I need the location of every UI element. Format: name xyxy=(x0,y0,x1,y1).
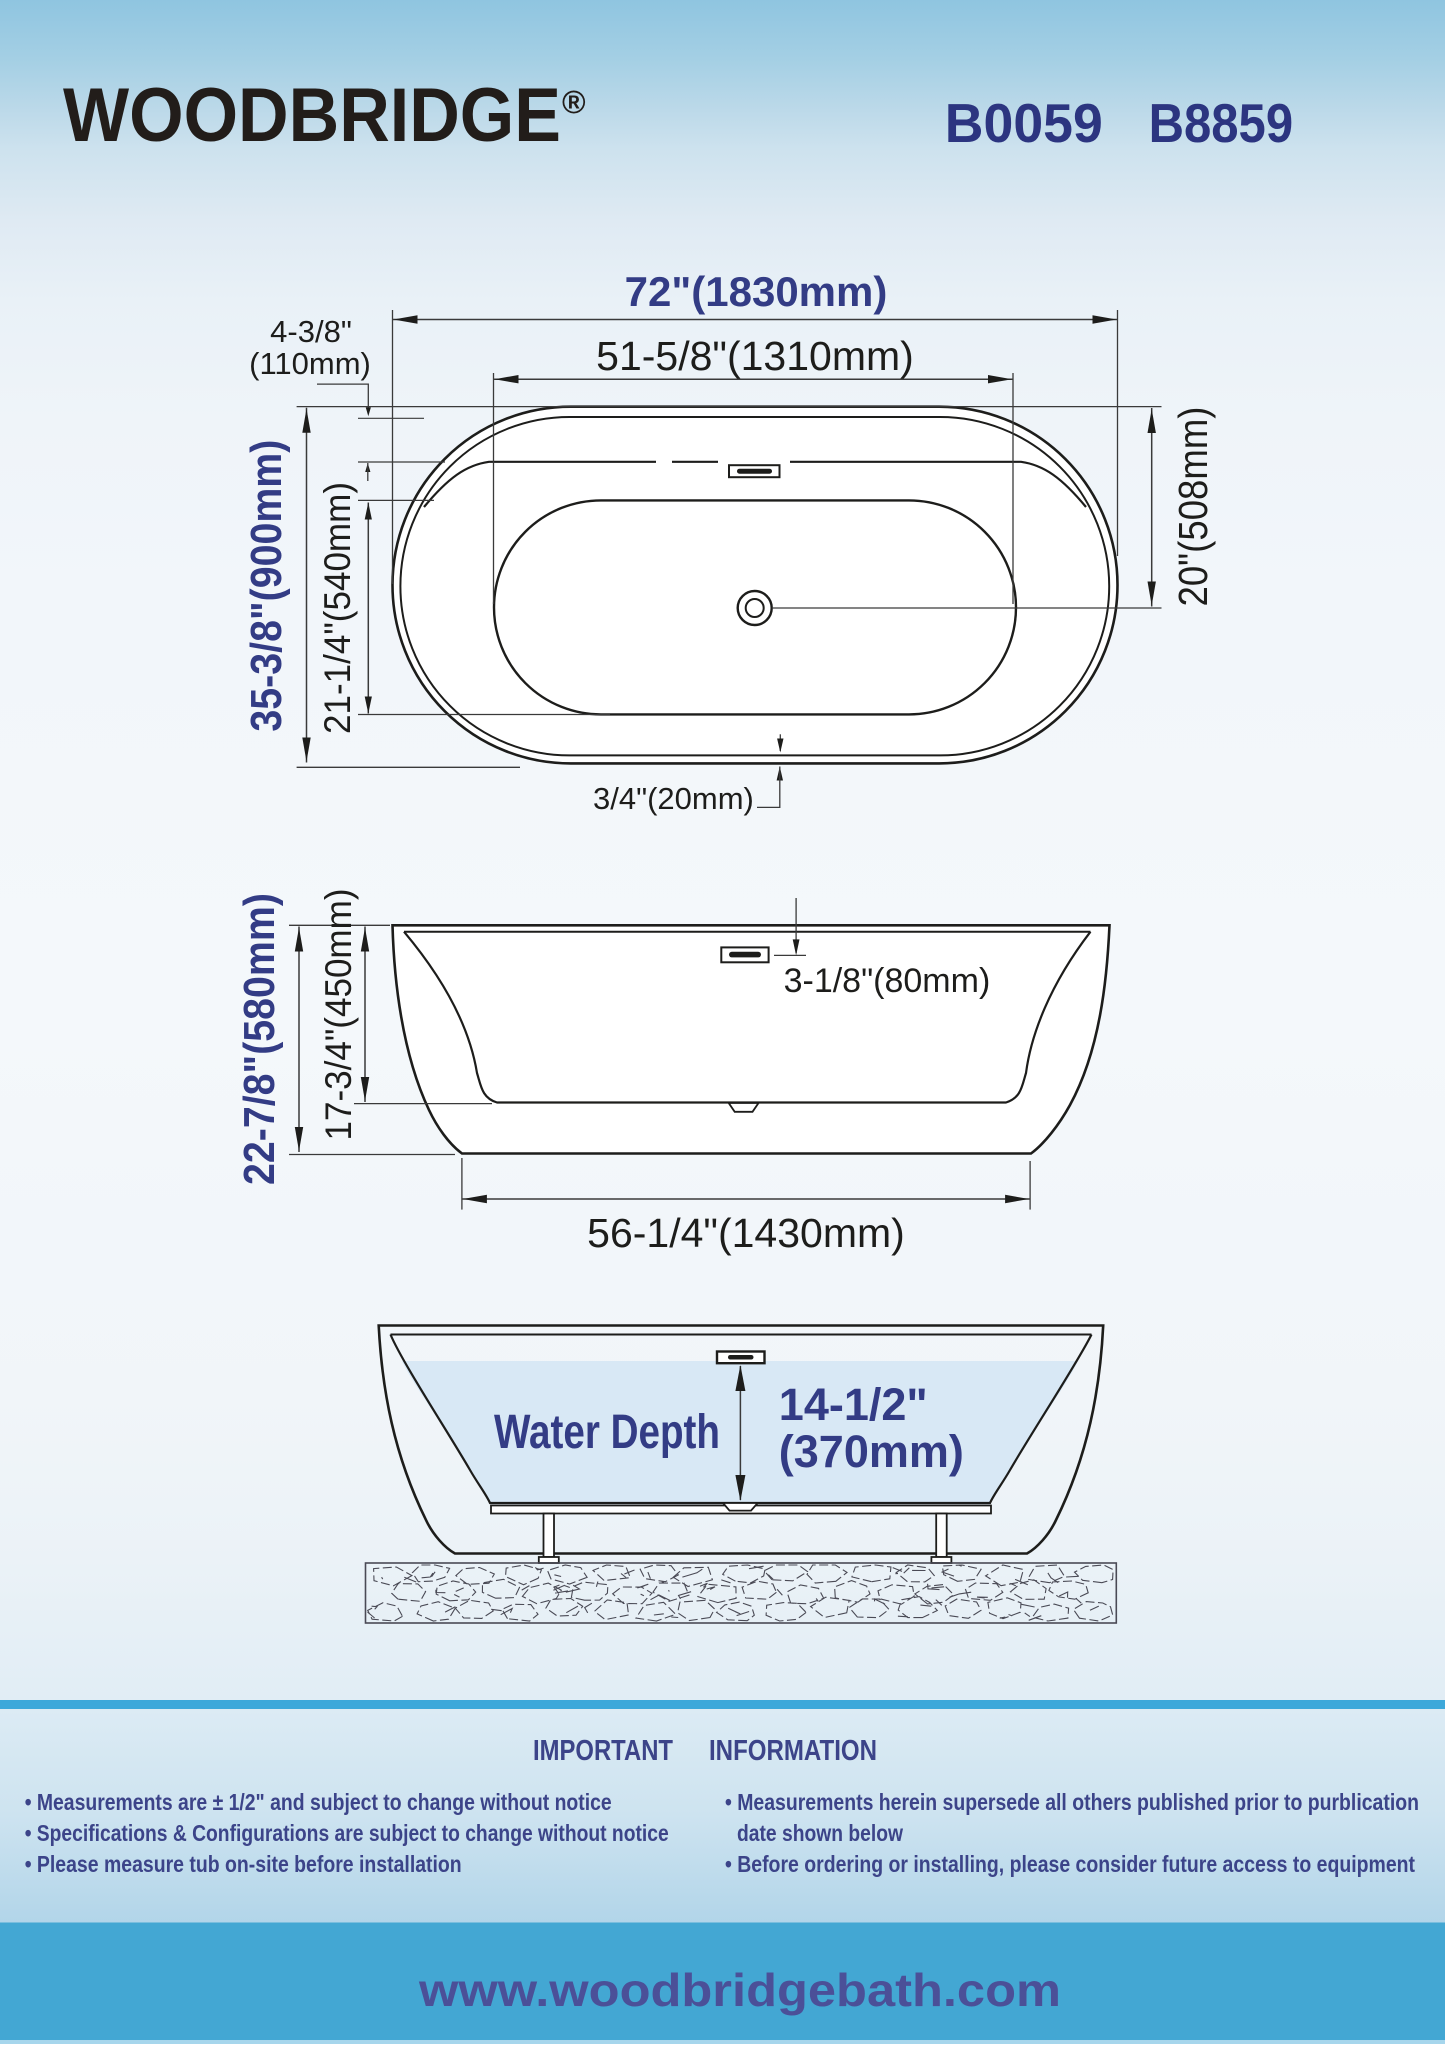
svg-text:B8859: B8859 xyxy=(1149,92,1294,154)
svg-text:®: ® xyxy=(562,84,586,120)
svg-text:• Before ordering or installin: • Before ordering or installing, please … xyxy=(725,1851,1415,1877)
svg-text:WOODBRIDGE: WOODBRIDGE xyxy=(63,73,561,158)
svg-text:35-3/8"(900mm): 35-3/8"(900mm) xyxy=(242,440,291,732)
svg-text:72"(1830mm): 72"(1830mm) xyxy=(625,268,888,315)
svg-text:www.woodbridgebath.com: www.woodbridgebath.com xyxy=(418,1964,1061,2016)
svg-text:17-3/4"(450mm): 17-3/4"(450mm) xyxy=(318,889,359,1141)
svg-text:• Measurements are ± 1/2" and: • Measurements are ± 1/2" and subject to… xyxy=(25,1789,612,1815)
svg-text:B0059: B0059 xyxy=(945,92,1103,154)
svg-text:• Specifications & Configurati: • Specifications & Configurations are su… xyxy=(25,1820,669,1846)
svg-text:4-3/8": 4-3/8" xyxy=(270,314,352,349)
svg-text:3/4"(20mm): 3/4"(20mm) xyxy=(593,781,754,816)
svg-text:INFORMATION: INFORMATION xyxy=(709,1735,877,1767)
svg-text:3-1/8"(80mm): 3-1/8"(80mm) xyxy=(784,962,991,1000)
svg-text:(370mm): (370mm) xyxy=(779,1426,964,1477)
svg-text:IMPORTANT: IMPORTANT xyxy=(533,1735,673,1767)
svg-text:56-1/4"(1430mm): 56-1/4"(1430mm) xyxy=(587,1210,905,1256)
svg-text:• Please measure tub on-site b: • Please measure tub on-site before inst… xyxy=(25,1851,462,1877)
svg-text:14-1/2": 14-1/2" xyxy=(779,1379,928,1430)
svg-text:20"(508mm): 20"(508mm) xyxy=(1170,407,1216,607)
svg-text:22-7/8"(580mm): 22-7/8"(580mm) xyxy=(235,893,284,1185)
svg-text:Water Depth: Water Depth xyxy=(494,1406,720,1459)
svg-text:51-5/8"(1310mm): 51-5/8"(1310mm) xyxy=(596,333,914,379)
svg-text:• Measurements herein supersed: • Measurements herein supersede all othe… xyxy=(725,1789,1419,1815)
svg-text:21-1/4"(540mm): 21-1/4"(540mm) xyxy=(317,482,358,734)
svg-text:(110mm): (110mm) xyxy=(249,346,371,381)
svg-text:date shown below: date shown below xyxy=(737,1820,903,1846)
